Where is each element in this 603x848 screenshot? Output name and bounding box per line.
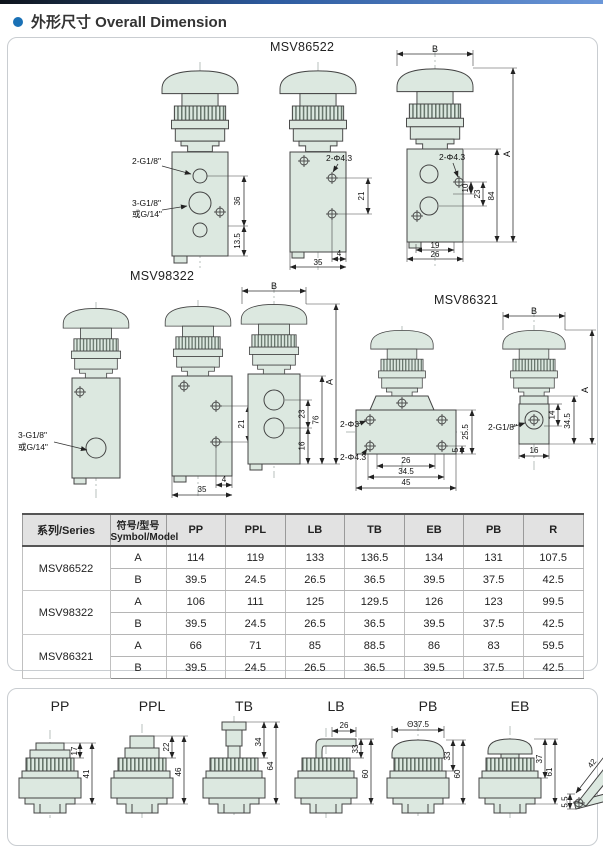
actuator-label-pp: PP xyxy=(51,698,70,714)
table-cell: 39.5 xyxy=(404,569,464,591)
dim-label: 26 xyxy=(340,721,349,730)
table-cell: 24.5 xyxy=(226,569,286,591)
table-row: MSV86321 A 66 71 85 88.5 86 83 59.5 xyxy=(22,635,583,657)
hole-label: 2-Φ4.3 xyxy=(439,152,465,162)
col-header-lb: LB xyxy=(285,514,345,546)
drawing-msv86321-front-view: 2-Φ3 2-Φ4.3 5 25.5 26 34.5 45 xyxy=(340,324,488,496)
dim-label: 42 xyxy=(586,757,599,770)
series-title-msv86522: MSV86522 xyxy=(270,40,334,54)
dim-label: 23 xyxy=(473,189,482,198)
col-header-series: 系列/Series xyxy=(22,514,110,546)
table-cell: 106 xyxy=(166,591,226,613)
dim-label: A xyxy=(580,387,590,393)
dim-label: B xyxy=(531,306,537,316)
dim-label: 10 xyxy=(461,183,470,192)
model-cell: A xyxy=(110,546,166,569)
series-title-msv98322: MSV98322 xyxy=(130,269,194,283)
series-cell: MSV86321 xyxy=(22,635,110,679)
dim-label: 13.5 xyxy=(233,233,242,249)
dim-label: A xyxy=(502,151,512,157)
dim-label: 76 xyxy=(312,415,321,424)
actuator-label-tb: TB xyxy=(235,698,253,714)
table-cell: 36.5 xyxy=(345,613,405,635)
model-cell: A xyxy=(110,635,166,657)
table-cell: 86 xyxy=(404,635,464,657)
table-cell: 42.5 xyxy=(523,569,583,591)
actuator-drawing-pb: Θ37.5 33 60 xyxy=(382,714,474,820)
dim-label: 26 xyxy=(402,456,411,465)
table-cell: 39.5 xyxy=(166,657,226,679)
table-cell: 99.5 xyxy=(523,591,583,613)
table-cell: 39.5 xyxy=(166,569,226,591)
dim-label: 21 xyxy=(357,191,366,200)
table-cell: 134 xyxy=(404,546,464,569)
table-cell: 37.5 xyxy=(464,613,524,635)
drawing-msv98322-dim-view: B 23 16 76 A xyxy=(236,282,348,480)
dim-label: 14 xyxy=(548,410,557,419)
table-cell: 36.5 xyxy=(345,569,405,591)
dimension-table: 系列/Series 符号/型号 Symbol/Model PP PPL LB T… xyxy=(22,513,584,679)
dim-label: 46 xyxy=(174,767,183,776)
dim-label: 19 xyxy=(431,241,440,250)
dim-label: 4 xyxy=(337,249,342,258)
page-title: 外形尺寸 Overall Dimension xyxy=(31,11,227,32)
table-cell: 24.5 xyxy=(226,657,286,679)
port-label: 3-G1/8" xyxy=(132,198,161,208)
dim-label: 61 xyxy=(545,767,554,776)
actuator-drawing-tb: 34 64 xyxy=(198,714,290,820)
table-cell: 83 xyxy=(464,635,524,657)
actuator-tb: TB 34 64 xyxy=(198,691,290,845)
model-cell: B xyxy=(110,569,166,591)
actuator-pb: PB Θ37.5 33 60 xyxy=(382,691,474,845)
col-header-symbol: 符号/型号 Symbol/Model xyxy=(110,514,166,546)
col-header-pb: PB xyxy=(464,514,524,546)
dim-label: 17 xyxy=(70,746,79,755)
actuator-drawing-ppl: 22 46 xyxy=(106,714,198,820)
dim-label: 4 xyxy=(222,475,227,484)
table-cell: 125 xyxy=(285,591,345,613)
table-cell: 39.5 xyxy=(404,613,464,635)
dim-label: B xyxy=(432,44,438,54)
table-cell: 114 xyxy=(166,546,226,569)
col-header-eb: EB xyxy=(404,514,464,546)
table-cell: 131 xyxy=(464,546,524,569)
actuator-label-eb: EB xyxy=(511,698,530,714)
table-cell: 136.5 xyxy=(345,546,405,569)
actuator-label-pb: PB xyxy=(419,698,438,714)
dimension-drawings-panel: MSV86522 MSV98322 MSV86321 2-G1/8" 3-G1/… xyxy=(7,37,598,671)
port-label: 3-G1/8" xyxy=(18,430,47,440)
col-header-r: R xyxy=(523,514,583,546)
dim-label: 84 xyxy=(487,191,496,200)
actuator-r: R 42 34.5 5.5 xyxy=(566,691,603,845)
actuator-lb: LB 26 33 60 xyxy=(290,691,382,845)
drawing-msv86321-side-view: B 2-G1/8" 14 34.5 A 16 xyxy=(488,306,603,472)
dim-label: 45 xyxy=(402,478,411,487)
drawing-msv98322-side-view: 3-G1/8" 或G/14" xyxy=(16,300,156,500)
dim-label: 35 xyxy=(314,258,323,267)
bullet-icon xyxy=(13,17,23,27)
series-cell: MSV98322 xyxy=(22,591,110,635)
table-cell: 66 xyxy=(166,635,226,657)
table-cell: 24.5 xyxy=(226,613,286,635)
col-header-ppl: PPL xyxy=(226,514,286,546)
dim-label: 33 xyxy=(351,744,360,753)
dim-label: 34 xyxy=(254,737,263,746)
dim-label: Θ37.5 xyxy=(407,720,429,729)
actuator-types-panel: PP 17 41 PPL 22 46 xyxy=(7,688,598,846)
dim-label: 36 xyxy=(233,196,242,205)
hole-label: 2-Φ4.3 xyxy=(340,452,366,462)
actuator-pp: PP 17 41 xyxy=(14,691,106,845)
actuator-drawing-lb: 26 33 60 xyxy=(290,714,382,820)
table-cell: 59.5 xyxy=(523,635,583,657)
actuator-label-ppl: PPL xyxy=(139,698,165,714)
actuator-eb: EB 37 61 xyxy=(474,691,566,845)
dim-label: 22 xyxy=(162,742,171,751)
port-label: 2-G1/8" xyxy=(132,156,161,166)
dim-label: B xyxy=(271,281,277,291)
actuator-drawing-r: 42 34.5 5.5 xyxy=(566,714,603,820)
table-cell: 119 xyxy=(226,546,286,569)
table-cell: 37.5 xyxy=(464,657,524,679)
dim-label: 34.5 xyxy=(563,413,572,429)
table-cell: 71 xyxy=(226,635,286,657)
table-cell: 88.5 xyxy=(345,635,405,657)
table-cell: 36.5 xyxy=(345,657,405,679)
dim-label: 60 xyxy=(453,769,462,778)
hole-label: 2-Φ3 xyxy=(340,419,359,429)
dim-label: 26 xyxy=(431,250,440,259)
table-cell: 39.5 xyxy=(166,613,226,635)
table-cell: 26.5 xyxy=(285,613,345,635)
col-header-symbol-en: Symbol/Model xyxy=(111,532,166,543)
series-cell: MSV86522 xyxy=(22,546,110,591)
dim-label: 5.5 xyxy=(561,796,570,808)
table-cell: 126 xyxy=(404,591,464,613)
table-cell: 42.5 xyxy=(523,657,583,679)
dim-label: 5 xyxy=(451,447,460,452)
model-cell: A xyxy=(110,591,166,613)
table-cell: 26.5 xyxy=(285,657,345,679)
table-row: MSV98322 A 106 111 125 129.5 126 123 99.… xyxy=(22,591,583,613)
model-cell: B xyxy=(110,657,166,679)
actuator-drawing-pp: 17 41 xyxy=(14,714,106,820)
dim-label: 64 xyxy=(266,761,275,770)
model-cell: B xyxy=(110,613,166,635)
dim-label: 23 xyxy=(298,409,307,418)
table-cell: 129.5 xyxy=(345,591,405,613)
table-cell: 133 xyxy=(285,546,345,569)
actuator-drawing-eb: 37 61 xyxy=(474,714,566,820)
drawing-area: MSV86522 MSV98322 MSV86321 2-G1/8" 3-G1/… xyxy=(8,38,597,510)
table-cell: 123 xyxy=(464,591,524,613)
table-cell: 111 xyxy=(226,591,286,613)
dim-label: 34.5 xyxy=(398,467,414,476)
actuator-ppl: PPL 22 46 xyxy=(106,691,198,845)
dim-label: 16 xyxy=(298,441,307,450)
drawing-msv86522-dim-view: B 2-Φ4.3 10 23 84 A xyxy=(383,44,525,268)
dim-label: 16 xyxy=(530,446,539,455)
hole-label: 2-Φ4.3 xyxy=(326,153,352,163)
drawing-msv86522-side-view: 2-G1/8" 3-G1/8" 或G/14" 36 13.5 xyxy=(130,60,280,270)
dim-label: 41 xyxy=(82,769,91,778)
table-cell: 85 xyxy=(285,635,345,657)
port-label: 或G/14" xyxy=(18,442,48,452)
col-header-symbol-zh: 符号/型号 xyxy=(111,517,166,532)
section-title-row: 外形尺寸 Overall Dimension xyxy=(0,4,603,37)
table-cell: 39.5 xyxy=(404,657,464,679)
drawing-msv86522-front-view: 2-Φ4.3 21 4 35 xyxy=(276,60,386,272)
dim-label: A xyxy=(325,379,335,385)
dim-label: 60 xyxy=(361,769,370,778)
series-title-msv86321: MSV86321 xyxy=(434,293,498,307)
dim-label: 35 xyxy=(198,485,207,494)
dim-label: 33 xyxy=(443,751,452,760)
actuator-label-lb: LB xyxy=(327,698,344,714)
dim-label: 37 xyxy=(535,754,544,763)
port-label: 或G/14" xyxy=(132,209,162,219)
table-cell: 107.5 xyxy=(523,546,583,569)
col-header-tb: TB xyxy=(345,514,405,546)
dim-label: 25.5 xyxy=(461,424,470,440)
table-row: MSV86522 A 114 119 133 136.5 134 131 107… xyxy=(22,546,583,569)
table-cell: 42.5 xyxy=(523,613,583,635)
table-cell: 26.5 xyxy=(285,569,345,591)
table-cell: 37.5 xyxy=(464,569,524,591)
